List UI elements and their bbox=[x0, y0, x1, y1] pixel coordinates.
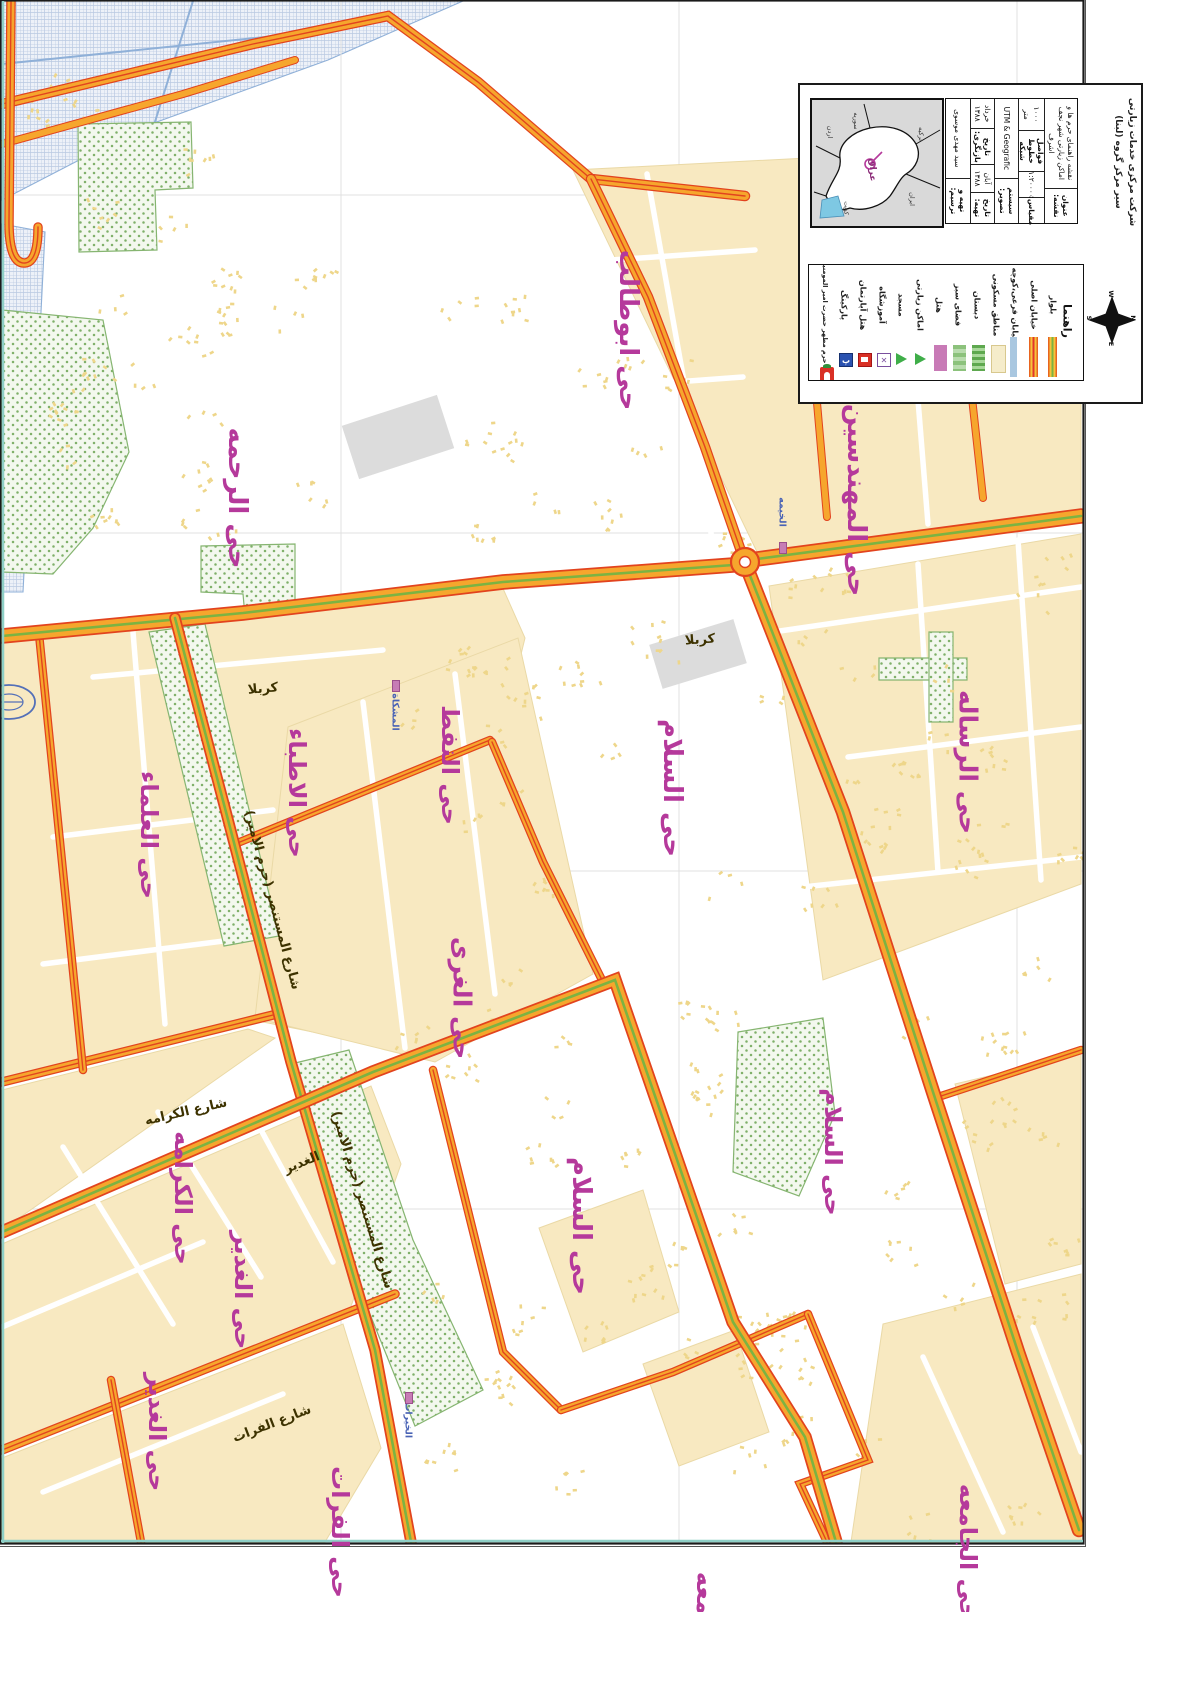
table-cell: UTM & Geografic bbox=[995, 99, 1018, 178]
title-block: عراقايرانتركيهسوريهاردنكويت عنوان نقشه:ن… bbox=[798, 83, 1143, 404]
info-table-wrap: عنوان نقشه:نقشه راهنمای حرم ها و اماکن ز… bbox=[945, 98, 1078, 224]
bar-minor-icon bbox=[1010, 337, 1017, 377]
bar-blvd-icon bbox=[1048, 337, 1057, 377]
table-cell: تاريخ بازنگری: bbox=[971, 128, 995, 164]
neighborhood-label: حى الكرامه bbox=[169, 1131, 197, 1265]
neighborhood-label: حى الجامعه bbox=[691, 1572, 719, 1612]
table-cell: سيد مهدی موسوی bbox=[946, 99, 970, 178]
neighborhood-label: حى العلماء bbox=[135, 771, 163, 899]
arrow-icon bbox=[896, 353, 907, 365]
neighborhood-label: حى الفرات bbox=[326, 1466, 354, 1598]
table-cell: آبان ۱۳۸۸ bbox=[971, 164, 995, 191]
legend-item-label: حرم مطهر حضرت امير المومنين (ع) bbox=[821, 264, 829, 363]
neighborhood-label: حى الغرى bbox=[448, 937, 477, 1060]
table-cell: عنوان نقشه: bbox=[1045, 188, 1077, 223]
inset-country-label: كويت bbox=[843, 201, 850, 215]
inset-location-map: عراقايرانتركيهسوريهاردنكويت bbox=[810, 98, 944, 228]
legend-box: راهنمابلوارخیابان اصلیخیابان فرعی،کوچهمن… bbox=[808, 264, 1084, 381]
landmark-label: الخيمه bbox=[777, 497, 788, 527]
compass-letter: E bbox=[1107, 342, 1115, 346]
neighborhood-label: حى النفط bbox=[436, 705, 464, 825]
neighborhood-label: حى الغدير bbox=[143, 1373, 171, 1492]
neighborhood-label: حى الجامعه bbox=[954, 1484, 982, 1612]
table-row: تاريخ تهيه:آبان ۱۳۸۸تاريخ بازنگری:خرداد … bbox=[970, 99, 995, 223]
inset-country-label: تركيه bbox=[917, 127, 925, 141]
box-photo-icon bbox=[858, 353, 872, 367]
landmark-icon bbox=[405, 1392, 413, 1404]
road-label: شارع الكرامه bbox=[143, 1095, 228, 1128]
table-cell: تهيه و ترسيم: bbox=[946, 178, 970, 223]
neighborhood-label: حى الرساله bbox=[954, 690, 983, 834]
landmark-icon bbox=[779, 542, 787, 554]
legend-item-label: بلوار bbox=[1049, 296, 1058, 315]
patch-school-icon bbox=[972, 345, 985, 371]
inset-country-label: اردن bbox=[826, 126, 834, 139]
neighborhood-label: حى السلام bbox=[819, 1088, 847, 1215]
table-cell: ۱۰۰۰ متر bbox=[1019, 99, 1044, 130]
neighborhood-label: حى الاطباء bbox=[283, 728, 311, 858]
table-row: مقياس:۱:۲۰۰۰۰فواصل خطوط شبكه۱۰۰۰ متر bbox=[1018, 99, 1044, 223]
neighborhood-label: حى الغدير bbox=[229, 1231, 257, 1350]
legend-item-label: خیابان فرعی،کوچه bbox=[1011, 268, 1020, 343]
road-label: شارع المستنصر (حرم الامير) bbox=[328, 1109, 396, 1290]
compass-letter: N bbox=[1129, 315, 1137, 320]
road-label: كربلا bbox=[247, 680, 279, 698]
inset-country-label: سوريه bbox=[852, 112, 860, 129]
compass-letter: S bbox=[1085, 316, 1093, 321]
legend-title: راهنما bbox=[1061, 304, 1074, 338]
inset-svg bbox=[812, 100, 942, 226]
legend-item-label: اماکن زیارتی bbox=[916, 279, 925, 331]
table-cell: فواصل خطوط شبكه bbox=[1019, 130, 1044, 171]
neighborhood-label: حى السلام bbox=[657, 719, 687, 857]
info-table: عنوان نقشه:نقشه راهنمای حرم ها و اماکن ز… bbox=[945, 98, 1078, 224]
legend-item-label: فضای سبز bbox=[954, 284, 963, 326]
inset-country-label: ايران bbox=[908, 192, 916, 206]
table-row: تهيه و ترسيم:سيد مهدی موسوی bbox=[946, 99, 970, 223]
legend-item-label: پارکینگ bbox=[840, 290, 849, 320]
box-x-icon: ✕ bbox=[877, 353, 891, 367]
neighborhood-label: حى المهندسين bbox=[841, 404, 871, 597]
box-p-icon: پ bbox=[839, 353, 853, 367]
table-cell: سيستم تصوير: bbox=[995, 178, 1018, 223]
company-name: شرکت مرکزی خدمات زیارتی سیر مرکز گروه (ل… bbox=[1082, 92, 1138, 232]
landmark-icon bbox=[392, 680, 400, 692]
compass-rose: NESW bbox=[1087, 290, 1137, 352]
legend-item-label: هتل bbox=[935, 297, 944, 313]
arrow-icon bbox=[915, 353, 926, 365]
legend-item-label: هتل آپارتمان bbox=[859, 280, 868, 330]
legend-item-label: دبستان bbox=[973, 291, 982, 319]
map-sheet: حى الرحمهحى ابوطالبحى المهندسينحى السلام… bbox=[0, 0, 1200, 1697]
patch-res-icon bbox=[991, 345, 1006, 373]
table-cell: تاريخ تهيه: bbox=[971, 192, 995, 223]
road-label: الغدير bbox=[282, 1149, 322, 1177]
patch-hotel-icon bbox=[934, 345, 947, 371]
bar-main-icon bbox=[1029, 337, 1038, 377]
landmark-label: المشكاة bbox=[390, 693, 401, 731]
table-cell: نقشه راهنمای حرم ها و اماکن زیارتی شهر ن… bbox=[1045, 99, 1077, 188]
table-row: عنوان نقشه:نقشه راهنمای حرم ها و اماکن ز… bbox=[1044, 99, 1077, 223]
neighborhood-label: حى السلام bbox=[566, 1157, 596, 1295]
road-label: شارع الفرات bbox=[231, 1402, 314, 1446]
legend-item-label: خیابان اصلی bbox=[1030, 280, 1039, 330]
inset-country-label: عراق bbox=[867, 159, 877, 182]
table-cell: خرداد ۱۳۸۸ bbox=[971, 99, 995, 128]
legend-item-label: آموزشگاه bbox=[878, 286, 887, 324]
road-label: كربلا bbox=[684, 631, 715, 648]
neighborhood-label: حى ابوطالب bbox=[613, 250, 643, 411]
legend-item-label: مسجد bbox=[897, 293, 906, 316]
patch-green-icon bbox=[953, 345, 966, 371]
table-cell: مقياس: bbox=[1019, 197, 1044, 223]
compass-letter: W bbox=[1107, 290, 1115, 297]
company-wrap: شرکت مرکزی خدمات زیارتی سیر مرکز گروه (ل… bbox=[1082, 92, 1138, 232]
table-row: سيستم تصوير:UTM & Geografic bbox=[994, 99, 1018, 223]
landmark-label: الخيرات bbox=[403, 1402, 414, 1438]
table-cell: ۱:۲۰۰۰۰ bbox=[1019, 171, 1044, 197]
neighborhood-label: حى الرحمه bbox=[222, 428, 252, 569]
legend-item-label: مناطق مسکونی bbox=[992, 274, 1001, 337]
shrine-icon bbox=[820, 367, 834, 381]
